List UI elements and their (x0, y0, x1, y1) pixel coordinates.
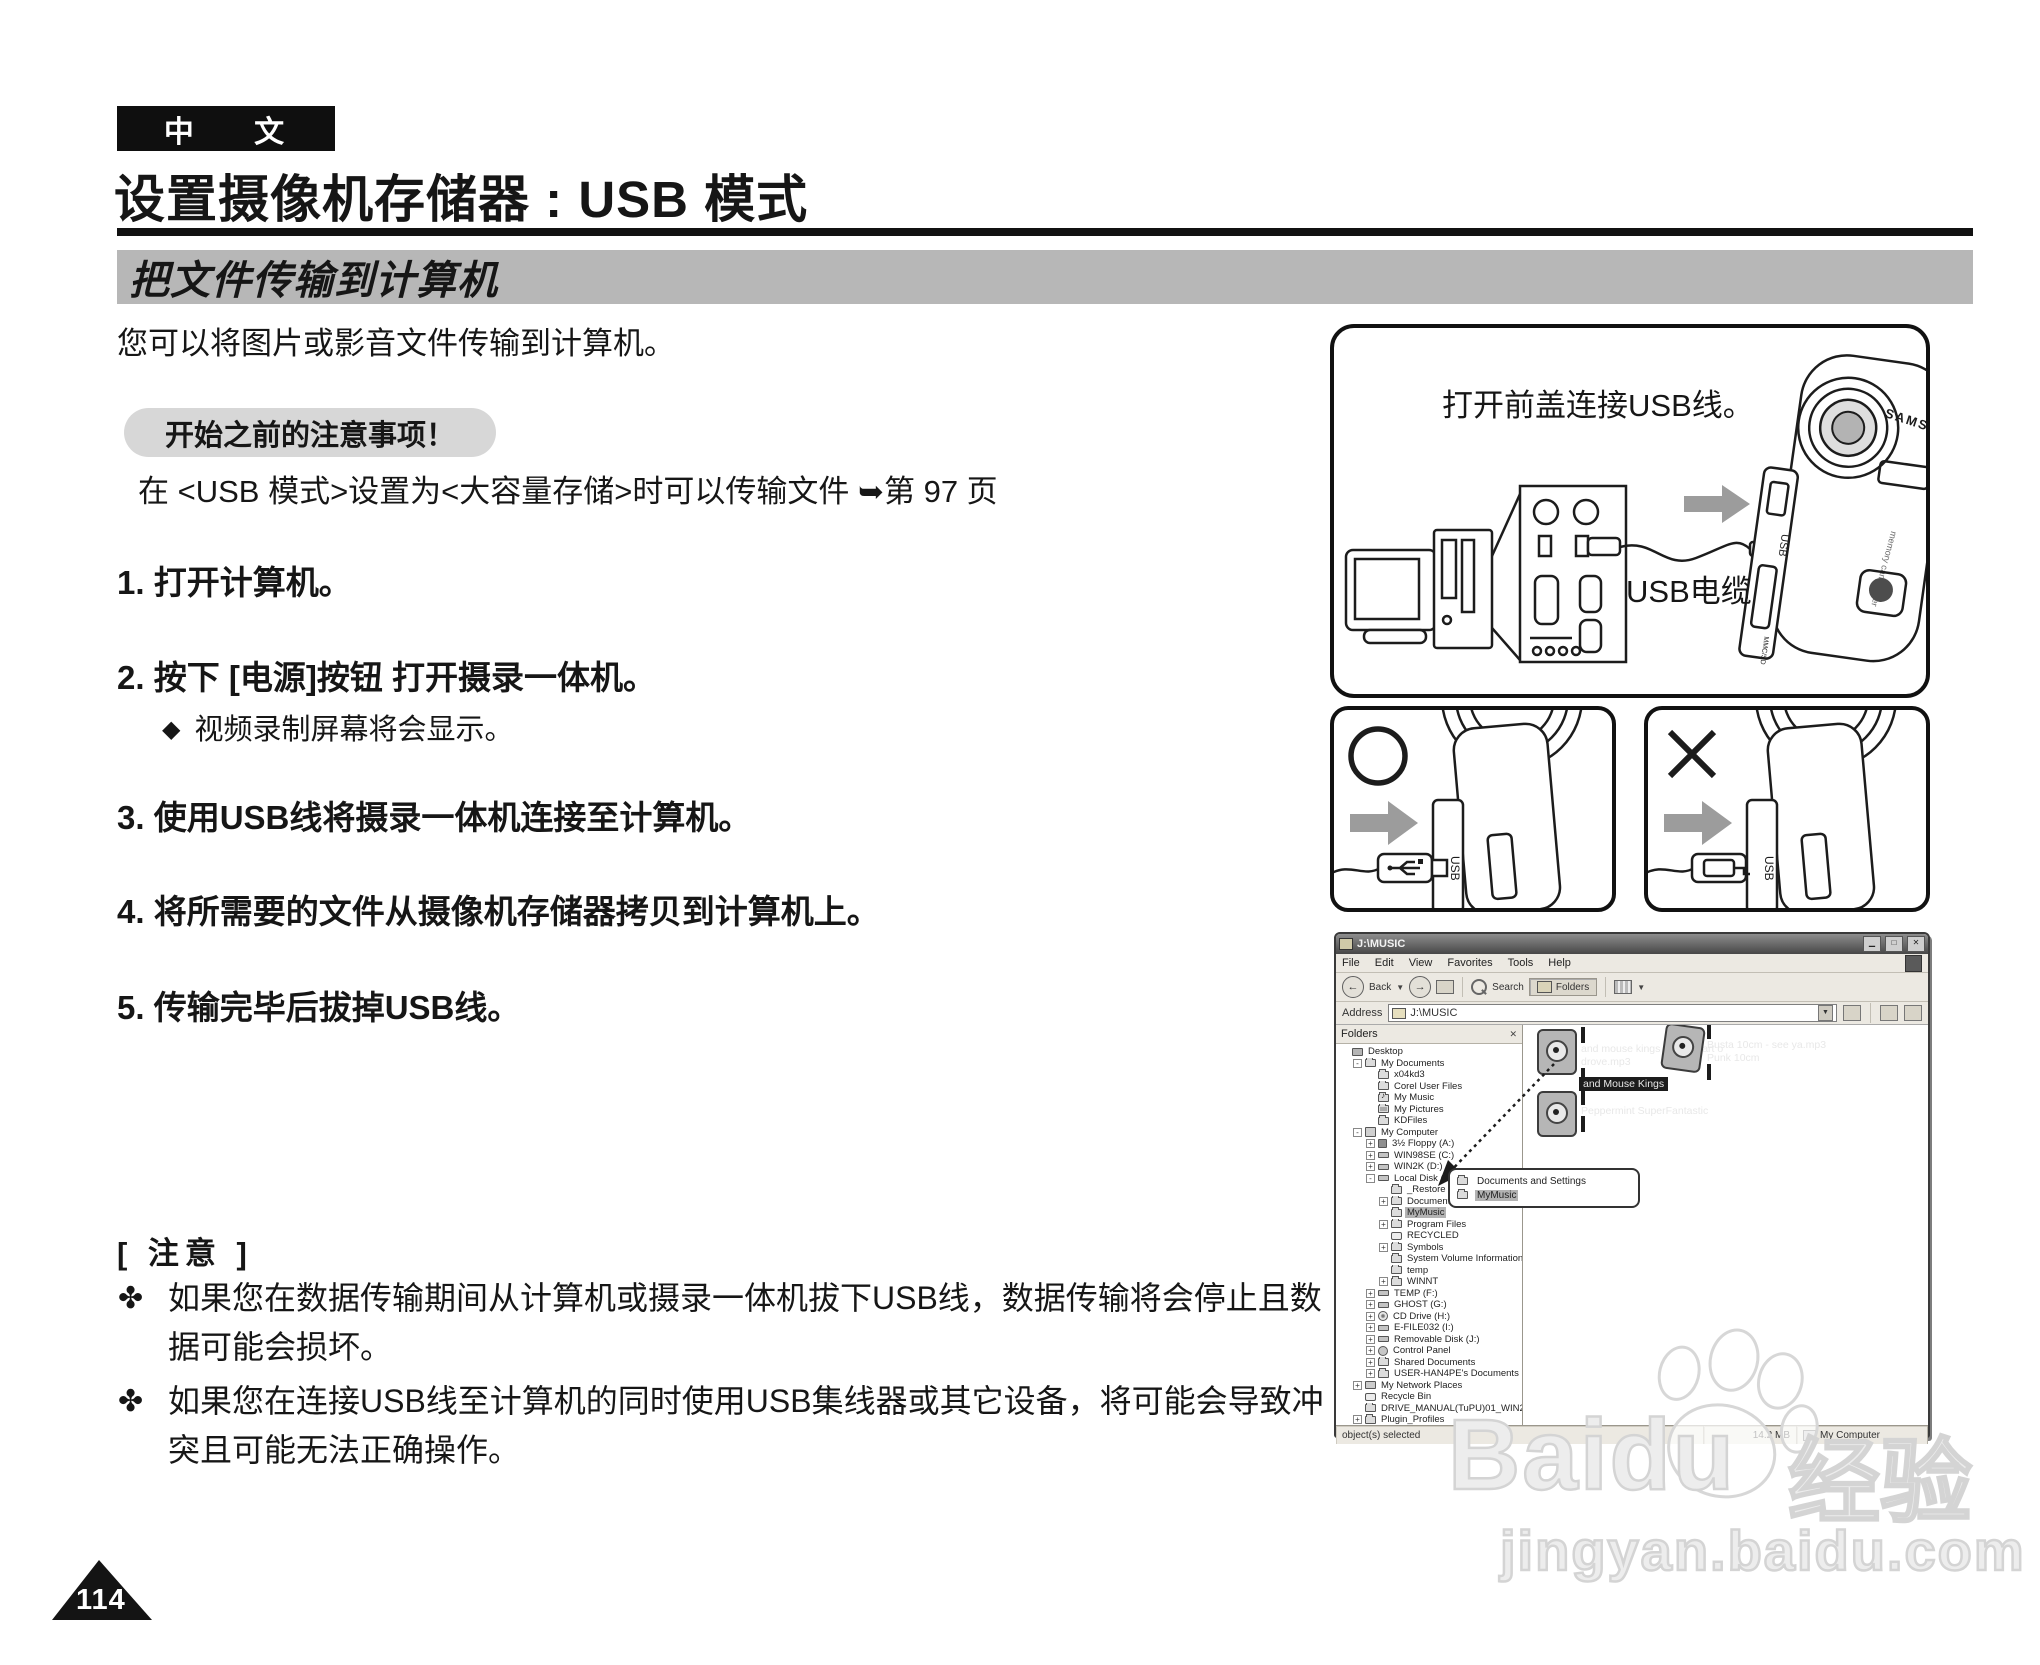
tree-item[interactable]: +Removable Disk (J:) (1336, 1334, 1522, 1346)
window-title: J:\MUSIC (1357, 938, 1405, 950)
recycle-icon (1391, 1232, 1402, 1240)
tree-item[interactable]: +My Network Places (1336, 1380, 1522, 1392)
folder-icon (1378, 1370, 1389, 1378)
recycle-icon (1365, 1393, 1376, 1401)
search-button-label[interactable]: Search (1492, 982, 1524, 993)
expand-icon[interactable]: + (1366, 1369, 1375, 1378)
page-title: 设置摄像机存储器 : USB 模式 (114, 158, 808, 232)
folder-icon (1378, 1358, 1389, 1366)
tree-item-label: Desktop (1366, 1046, 1405, 1057)
diamond-bullet-icon: ◆ (162, 716, 180, 743)
expand-icon[interactable]: + (1366, 1312, 1375, 1321)
tree-item-label: 3½ Floppy (A:) (1390, 1138, 1456, 1149)
views-dropdown-icon[interactable]: ▼ (1637, 983, 1645, 992)
folder-icon (1391, 1209, 1402, 1217)
network-icon (1365, 1381, 1376, 1389)
step-2-sub: ◆视频录制屏幕将会显示。 (162, 706, 513, 748)
folder-icon (1378, 1071, 1389, 1079)
extra-toolbar-icon[interactable] (1904, 1005, 1922, 1021)
tree-item-label: Plugin_Profiles (1379, 1414, 1446, 1425)
page-number-badge: 114 (52, 1560, 152, 1620)
explorer-menu-bar: File Edit View Favorites Tools Help (1336, 954, 1928, 973)
usb-port-label: USB (1448, 856, 1462, 881)
notice-text: 在 <USB 模式>设置为<大容量存储>时可以传输文件 ➥第 97 页 (138, 466, 998, 511)
folders-pane-title: Folders (1341, 1028, 1378, 1040)
figure-wrong-orientation: USB (1644, 706, 1930, 912)
folder-icon (1378, 1082, 1389, 1090)
tree-item-label: My Computer (1379, 1127, 1440, 1138)
tree-item[interactable]: +GHOST (G:) (1336, 1299, 1522, 1311)
explorer-status-bar: object(s) selected 14.2 MB My Computer (1336, 1425, 1928, 1444)
tree-item-label: x04kd3 (1392, 1069, 1427, 1080)
drive-icon (1378, 1336, 1389, 1342)
close-button[interactable]: ✕ (1907, 936, 1925, 952)
usb-port-label: USB (1762, 856, 1776, 881)
tree-item-label: Symbols (1405, 1242, 1445, 1253)
note-text: 如果您在数据传输期间从计算机或摄录一体机拔下USB线，数据传输将会停止且数据可能… (168, 1274, 1346, 1371)
maximize-button[interactable]: □ (1885, 936, 1903, 952)
expand-icon[interactable]: + (1366, 1323, 1375, 1332)
step-3: 3. 使用USB线将摄录一体机连接至计算机。 (117, 791, 751, 839)
section-banner: 把文件传输到计算机 (117, 250, 1973, 304)
tree-item-label: temp (1405, 1265, 1430, 1276)
expand-icon[interactable]: + (1366, 1289, 1375, 1298)
folder-icon (1365, 1404, 1376, 1412)
tooltip-item: Documents and Settings (1456, 1174, 1632, 1188)
drive-icon (1378, 1302, 1389, 1308)
tree-item[interactable]: +Plugin_Profiles (1336, 1414, 1522, 1425)
tree-item-label: System Volume Information (1405, 1253, 1522, 1264)
tooltip-item: MyMusic (1456, 1188, 1632, 1202)
expand-icon[interactable]: + (1379, 1243, 1388, 1252)
address-label: Address (1342, 1007, 1382, 1019)
folder-icon (1391, 1278, 1402, 1286)
toolbar-separator (1462, 977, 1463, 997)
tree-item-label: KDFiles (1392, 1115, 1429, 1126)
collapse-icon[interactable]: - (1353, 1128, 1362, 1137)
usb-cable-label: USB电缆 (1626, 566, 1752, 611)
drag-destination-tooltip: Documents and Settings MyMusic (1448, 1168, 1640, 1208)
figure-caption: 打开前盖连接USB线。 (1442, 380, 1754, 425)
explorer-address-bar: Address J:\MUSIC ▼ (1336, 1002, 1928, 1025)
tree-item-label: WIN2K (D:) (1392, 1161, 1445, 1172)
expand-icon[interactable]: + (1366, 1335, 1375, 1344)
minimize-button[interactable]: ▁ (1863, 936, 1881, 952)
tree-item[interactable]: RECYCLED (1336, 1230, 1522, 1242)
direction-arrow-icon (1350, 801, 1418, 845)
pc-port-panel (1520, 486, 1626, 662)
collapse-icon[interactable]: - (1366, 1174, 1375, 1183)
expand-icon[interactable]: + (1379, 1197, 1388, 1206)
language-tag-label: 中 文 (164, 107, 310, 151)
tree-item[interactable]: +WIN98SE (C:) (1336, 1150, 1522, 1162)
drive-icon (1378, 1164, 1389, 1170)
clover-bullet-icon: ✤ (118, 1377, 154, 1474)
figure-correct-orientation: USB (1330, 706, 1616, 912)
tree-item-label: Program Files (1405, 1219, 1468, 1230)
note-header: [ 注意 ] (117, 1228, 253, 1273)
tree-item[interactable]: +Symbols (1336, 1242, 1522, 1254)
tree-item[interactable]: +Shared Documents (1336, 1357, 1522, 1369)
expand-icon[interactable]: + (1366, 1346, 1375, 1355)
folder-icon (1339, 938, 1353, 950)
address-field[interactable]: J:\MUSIC ▼ (1388, 1004, 1837, 1022)
tree-item[interactable]: +TEMP (F:) (1336, 1288, 1522, 1300)
up-folder-button[interactable] (1436, 980, 1454, 994)
title-rule (117, 228, 1973, 236)
tree-item[interactable]: My Pictures (1336, 1104, 1522, 1116)
menu-favorites[interactable]: Favorites (1447, 957, 1492, 969)
tree-item-label: Removable Disk (J:) (1392, 1334, 1482, 1345)
drive-icon (1378, 1290, 1389, 1296)
back-dropdown-icon[interactable]: ▼ (1396, 983, 1404, 992)
folders-pane: Folders ✕ Desktop-My Documentsx04kd3Core… (1336, 1025, 1523, 1425)
tree-item[interactable]: -My Computer (1336, 1127, 1522, 1139)
folder-icon (1391, 1197, 1402, 1205)
file-item[interactable]: Peppermint SuperFantastic (1537, 1091, 1708, 1137)
expand-icon[interactable]: + (1353, 1415, 1362, 1424)
tree-item[interactable]: DRIVE_MANUAL(TuPU)01_WIN2K/P (1336, 1403, 1522, 1415)
folder-icon (1391, 1255, 1402, 1263)
tree-item-label: RECYCLED (1405, 1230, 1461, 1241)
computer-icon (1365, 1127, 1376, 1137)
tree-item[interactable]: +Program Files (1336, 1219, 1522, 1231)
tree-item[interactable]: System Volume Information (1336, 1253, 1522, 1265)
tree-item-label: MyMusic (1405, 1207, 1446, 1218)
back-button-label[interactable]: Back (1369, 982, 1391, 993)
desktop-icon (1352, 1048, 1363, 1056)
camcorder: SAMSUNG memory camcorder USB MMC/SD (1738, 346, 1926, 688)
folder-icon (1365, 1059, 1376, 1067)
audio-file-icon (1660, 1025, 1706, 1074)
tree-item-label: Shared Documents (1392, 1357, 1477, 1368)
folder-icon (1391, 1266, 1402, 1274)
tree-item[interactable]: +CD Drive (H:) (1336, 1311, 1522, 1323)
folder-icon (1391, 1220, 1402, 1228)
explorer-window: J:\MUSIC ▁ □ ✕ File Edit View Favorites … (1334, 932, 1930, 1438)
file-list-pane: and mouse kings - The heart o drove.mp3 … (1523, 1025, 1928, 1425)
close-pane-icon[interactable]: ✕ (1509, 1029, 1517, 1040)
menu-tools[interactable]: Tools (1508, 957, 1534, 969)
folder-icon (1457, 1177, 1468, 1185)
pics-icon (1378, 1105, 1389, 1113)
tree-item[interactable]: -My Documents (1336, 1058, 1522, 1070)
expand-icon[interactable]: + (1379, 1277, 1388, 1286)
step-2: 2. 按下 [电源]按钮 打开摄录一体机。 (117, 651, 656, 699)
menu-file[interactable]: File (1342, 957, 1360, 969)
menu-edit[interactable]: Edit (1375, 957, 1394, 969)
extra-toolbar-icon[interactable] (1880, 1005, 1898, 1021)
notice-pill: 开始之前的注意事项！ (124, 408, 496, 457)
folders-button[interactable]: Folders (1529, 978, 1597, 996)
folder-icon (1378, 1117, 1389, 1125)
file-label: Busta 10cm - see ya.mp3 Punk 10cm (1707, 1025, 1826, 1080)
section-banner-label: 把文件传输到计算机 (117, 248, 498, 306)
tree-item[interactable]: Recycle Bin (1336, 1391, 1522, 1403)
drive-icon (1378, 1152, 1389, 1158)
folder-icon (1391, 1243, 1402, 1251)
cd-icon (1378, 1311, 1388, 1321)
camcorder-detail: USB (1433, 710, 1582, 908)
folder-tree: Desktop-My Documentsx04kd3Corel User Fil… (1336, 1044, 1522, 1425)
direction-arrow-icon (1684, 485, 1750, 523)
tree-item-label: GHOST (G:) (1392, 1299, 1449, 1310)
tree-item-label: E-FILE032 (I:) (1392, 1322, 1456, 1333)
tree-item[interactable]: +USER-HAN4PE's Documents (1336, 1368, 1522, 1380)
ok-mark-icon (1351, 729, 1405, 783)
usb-plug (1334, 854, 1447, 882)
tree-item-label: DRIVE_MANUAL(TuPU)01_WIN2K/P (1379, 1403, 1522, 1414)
go-button-icon[interactable] (1843, 1005, 1861, 1021)
tree-item-label: TEMP (F:) (1392, 1288, 1440, 1299)
my-computer-icon (1803, 1430, 1816, 1441)
intro-text: 您可以将图片或影音文件传输到计算机。 (117, 318, 675, 363)
explorer-title-bar[interactable]: J:\MUSIC ▁ □ ✕ (1336, 934, 1928, 954)
computer-monitor (1346, 550, 1436, 643)
back-button[interactable]: ← (1342, 976, 1364, 998)
search-icon[interactable] (1471, 979, 1487, 995)
folders-pane-header: Folders ✕ (1336, 1025, 1522, 1044)
folder-icon (1457, 1191, 1468, 1199)
tree-item-label: My Pictures (1392, 1104, 1446, 1115)
file-item[interactable]: Busta 10cm - see ya.mp3 Punk 10cm (1663, 1025, 1826, 1080)
tree-item[interactable]: temp (1336, 1265, 1522, 1277)
status-size: 14.2 MB (1704, 1426, 1797, 1444)
explorer-body: Folders ✕ Desktop-My Documentsx04kd3Core… (1336, 1025, 1928, 1425)
tree-item[interactable]: Corel User Files (1336, 1081, 1522, 1093)
control-icon (1378, 1346, 1388, 1356)
tree-item-label: My Music (1392, 1092, 1436, 1103)
folder-icon (1365, 1416, 1376, 1424)
step-5: 5. 传输完毕后拔掉USB线。 (117, 981, 520, 1029)
language-tag: 中 文 (117, 106, 335, 151)
expand-icon[interactable]: + (1353, 1381, 1362, 1390)
audio-file-icon (1537, 1029, 1577, 1075)
tree-item-label: Recycle Bin (1379, 1391, 1433, 1402)
forward-button[interactable]: → (1409, 976, 1431, 998)
note-item: ✤ 如果您在数据传输期间从计算机或摄录一体机拔下USB线，数据传输将会停止且数据… (118, 1274, 1346, 1371)
tree-item[interactable]: +Control Panel (1336, 1345, 1522, 1357)
manual-page: 中 文 设置摄像机存储器 : USB 模式 把文件传输到计算机 您可以将图片或影… (0, 0, 2040, 1665)
step-2-sub-text: 视频录制屏幕将会显示。 (194, 714, 513, 746)
menu-view[interactable]: View (1409, 957, 1433, 969)
watermark-url: jingyan.baidu.com (1500, 1518, 2026, 1583)
usb-plug-upside-down (1648, 854, 1750, 882)
status-selection: object(s) selected (1336, 1426, 1704, 1444)
folders-button-label: Folders (1556, 982, 1589, 993)
note-item: ✤ 如果您在连接USB线至计算机的同时使用USB集线器或其它设备，将可能会导致冲… (118, 1377, 1346, 1474)
computer-tower (1434, 530, 1492, 648)
tree-item[interactable]: x04kd3 (1336, 1069, 1522, 1081)
floppy-icon (1378, 1139, 1387, 1148)
tree-item-label: USER-HAN4PE's Documents (1392, 1368, 1521, 1379)
views-icon[interactable] (1614, 980, 1632, 994)
folder-icon (1392, 1008, 1406, 1019)
tree-item-label: Control Panel (1391, 1345, 1453, 1356)
tree-item-label: WIN98SE (C:) (1392, 1150, 1456, 1161)
expand-icon[interactable]: + (1366, 1358, 1375, 1367)
tree-item[interactable]: Desktop (1336, 1046, 1522, 1058)
wrong-mark-icon (1670, 732, 1714, 776)
tree-item-label: WINNT (1405, 1276, 1440, 1287)
status-zone: My Computer (1797, 1426, 1928, 1444)
toolbar-separator (1605, 977, 1606, 997)
tree-item[interactable]: +E-FILE032 (I:) (1336, 1322, 1522, 1334)
page-number: 114 (76, 1584, 126, 1617)
drive-icon (1378, 1325, 1389, 1331)
toolbar-separator (1870, 1003, 1871, 1023)
address-dropdown-icon[interactable]: ▼ (1818, 1005, 1833, 1021)
drive-icon (1378, 1175, 1389, 1181)
music-icon (1378, 1094, 1389, 1102)
menu-help[interactable]: Help (1548, 957, 1571, 969)
file-sublabel: and Mouse Kings (1579, 1077, 1668, 1091)
tree-item[interactable]: KDFiles (1336, 1115, 1522, 1127)
expand-icon[interactable]: + (1379, 1220, 1388, 1229)
audio-file-icon (1537, 1091, 1577, 1137)
step-4: 4. 将所需要的文件从摄像机存储器拷贝到计算机上。 (117, 885, 880, 933)
tree-item-label: _Restore (1405, 1184, 1448, 1195)
folder-icon (1391, 1186, 1402, 1194)
note-list: ✤ 如果您在数据传输期间从计算机或摄录一体机拔下USB线，数据传输将会停止且数据… (118, 1274, 1346, 1481)
step-1: 1. 打开计算机。 (117, 556, 352, 604)
tree-item[interactable]: +3½ Floppy (A:) (1336, 1138, 1522, 1150)
expand-icon[interactable]: + (1366, 1139, 1375, 1148)
tree-item-label: CD Drive (H:) (1391, 1311, 1452, 1322)
tree-item[interactable]: +WINNT (1336, 1276, 1522, 1288)
clover-bullet-icon: ✤ (118, 1274, 154, 1371)
tree-item-label: My Network Places (1379, 1380, 1464, 1391)
address-value: J:\MUSIC (1410, 1007, 1457, 1019)
tree-item-label: My Documents (1379, 1058, 1446, 1069)
note-text: 如果您在连接USB线至计算机的同时使用USB集线器或其它设备，将可能会导致冲突且… (168, 1377, 1346, 1474)
tree-item[interactable]: MyMusic (1336, 1207, 1522, 1219)
expand-icon[interactable]: + (1366, 1151, 1375, 1160)
collapse-icon[interactable]: - (1353, 1059, 1362, 1068)
expand-icon[interactable]: + (1366, 1162, 1375, 1171)
direction-arrow-icon (1664, 801, 1732, 845)
tree-item[interactable]: My Music (1336, 1092, 1522, 1104)
file-label: Peppermint SuperFantastic (1581, 1089, 1708, 1132)
windows-logo-icon (1905, 955, 1922, 972)
tree-item-label: Corel User Files (1392, 1081, 1464, 1092)
explorer-toolbar: ← Back ▼ → Search Folders ▼ (1336, 973, 1928, 1002)
camcorder-detail: USB (1747, 710, 1896, 908)
folders-icon (1537, 981, 1552, 993)
expand-icon[interactable]: + (1366, 1300, 1375, 1309)
figure-usb-connection: SAMSUNG memory camcorder USB MMC/SD 打开前盖… (1330, 324, 1930, 698)
